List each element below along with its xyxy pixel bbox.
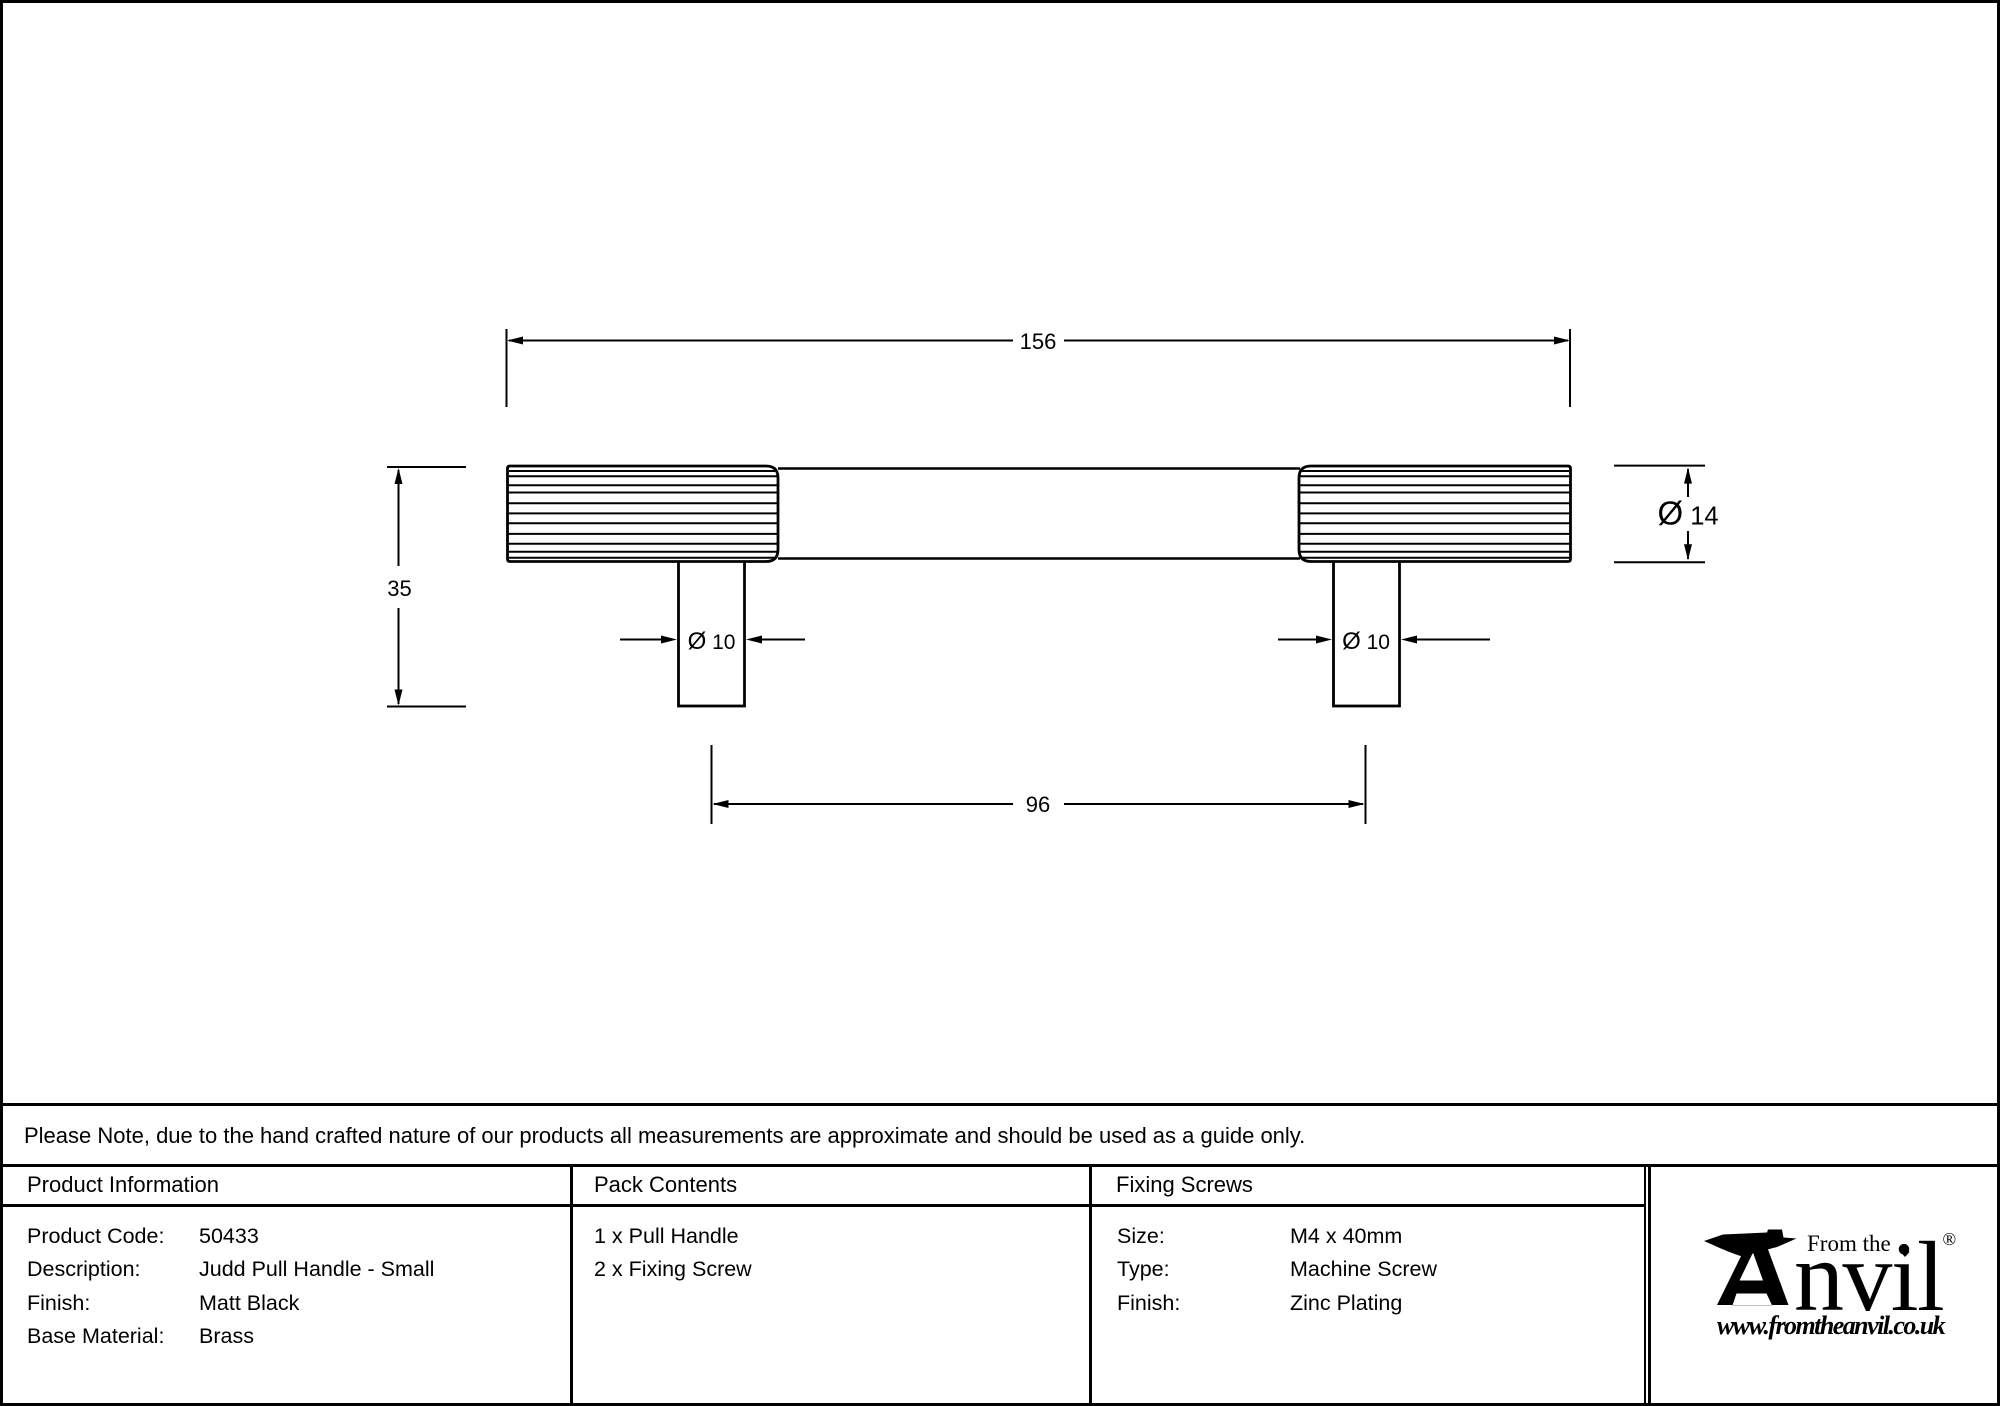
- svg-text:Ø 10: Ø 10: [688, 628, 736, 655]
- svg-text:Ø 10: Ø 10: [1342, 628, 1390, 655]
- svg-text:Ø 14: Ø 14: [1657, 495, 1718, 532]
- svg-text:www.fromtheanvil.co.uk: www.fromtheanvil.co.uk: [1717, 1311, 1946, 1340]
- svg-text:®: ®: [1943, 1229, 1957, 1249]
- svg-text:35: 35: [387, 576, 411, 601]
- svg-text:156: 156: [1020, 329, 1057, 354]
- svg-text:96: 96: [1026, 792, 1050, 817]
